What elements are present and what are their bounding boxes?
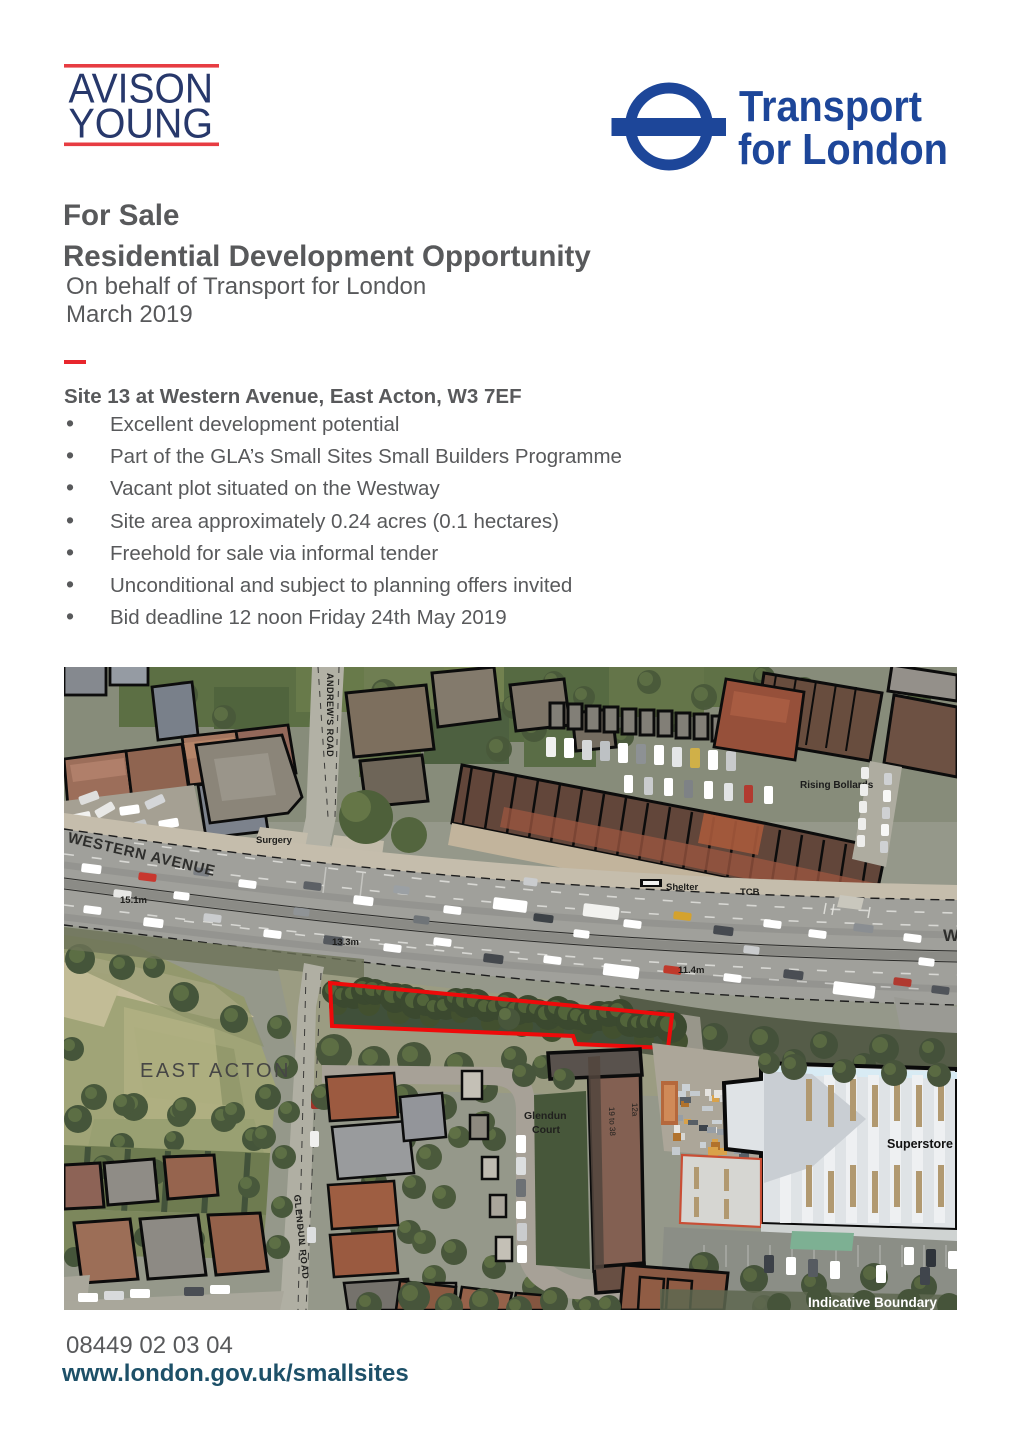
svg-text:Shelter: Shelter bbox=[666, 882, 699, 893]
svg-text:YOUNG: YOUNG bbox=[69, 100, 214, 147]
svg-text:Glendun: Glendun bbox=[524, 1110, 567, 1122]
svg-text:Indicative Boundary: Indicative Boundary bbox=[808, 1295, 938, 1310]
svg-text:Surgery: Surgery bbox=[256, 835, 293, 846]
svg-text:TCB: TCB bbox=[740, 887, 760, 898]
svg-text:15.1m: 15.1m bbox=[120, 895, 147, 906]
svg-text:Transport: Transport bbox=[739, 82, 922, 131]
svg-text:12a: 12a bbox=[630, 1103, 639, 1117]
svg-text:13.3m: 13.3m bbox=[332, 937, 359, 948]
svg-text:11.4m: 11.4m bbox=[678, 965, 704, 976]
svg-text:W: W bbox=[943, 926, 957, 945]
svg-text:Court: Court bbox=[532, 1124, 560, 1136]
svg-text:19 to 38: 19 to 38 bbox=[607, 1107, 617, 1137]
svg-text:EAST ACTON: EAST ACTON bbox=[140, 1060, 291, 1082]
svg-text:for London: for London bbox=[738, 125, 948, 174]
svg-text:ANDREW'S ROAD: ANDREW'S ROAD bbox=[325, 673, 335, 757]
svg-text:Superstore: Superstore bbox=[887, 1137, 953, 1151]
